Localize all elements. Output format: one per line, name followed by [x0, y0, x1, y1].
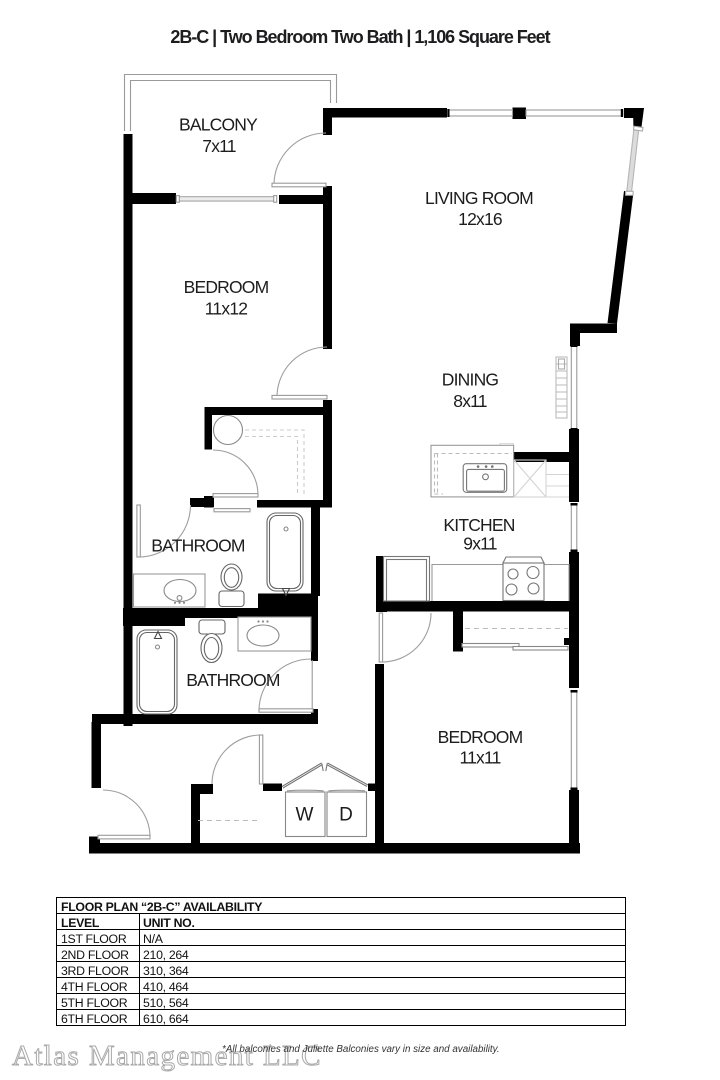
svg-text:BATHROOM: BATHROOM: [186, 670, 280, 690]
svg-text:DINING: DINING: [442, 370, 499, 390]
svg-text:D: D: [339, 805, 353, 826]
svg-text:11x11: 11x11: [459, 748, 500, 768]
svg-text:7x11: 7x11: [202, 136, 236, 156]
svg-text:W: W: [296, 805, 314, 826]
svg-text:LIVING ROOM: LIVING ROOM: [425, 188, 533, 208]
svg-text:BEDROOM: BEDROOM: [438, 727, 523, 747]
svg-text:12x16: 12x16: [458, 209, 502, 229]
svg-text:BALCONY: BALCONY: [179, 115, 258, 135]
svg-text:BEDROOM: BEDROOM: [184, 277, 269, 297]
svg-text:BATHROOM: BATHROOM: [151, 536, 245, 556]
svg-text:8x11: 8x11: [453, 391, 487, 411]
svg-text:9x11: 9x11: [463, 534, 497, 554]
svg-text:11x12: 11x12: [205, 299, 247, 319]
svg-text:KITCHEN: KITCHEN: [443, 515, 514, 535]
